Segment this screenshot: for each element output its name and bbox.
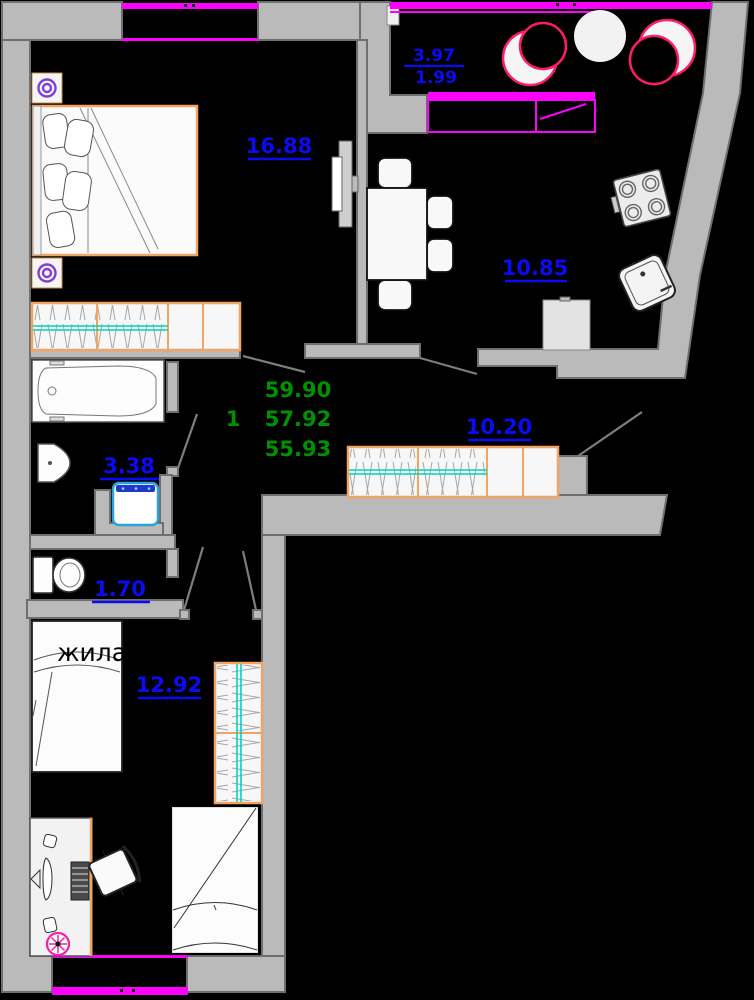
- nightstand-bottom: [32, 258, 62, 288]
- wall-wc-top: [30, 535, 175, 549]
- mouse-bottom: [43, 917, 58, 933]
- door-jamb-right: [253, 610, 262, 619]
- washing-machine: [113, 483, 158, 525]
- hall-wardrobe: [348, 447, 558, 497]
- mouse-top: [43, 834, 58, 849]
- wall-livingroom-bottom-right: [187, 956, 285, 992]
- door-jamb-left: [180, 610, 189, 619]
- chair-right-1: [427, 196, 453, 229]
- bathtub-grab-bottom: [50, 417, 64, 421]
- nightstand-top: [32, 73, 62, 103]
- tv-mount: [352, 176, 358, 192]
- wardrobe-hatch: [419, 449, 485, 495]
- chair-bottom: [378, 280, 412, 310]
- kitchen-area-label: 10.85: [502, 256, 568, 280]
- wall-hall-bottom: [262, 495, 667, 535]
- wardrobe-hatch: [217, 665, 260, 731]
- wardrobe-hatch: [350, 449, 416, 495]
- wall-kitchen-bottom-left: [305, 344, 420, 358]
- stove-body: [613, 169, 671, 227]
- kitchen-cabinet: [543, 297, 590, 350]
- bed-headboard: [33, 106, 41, 255]
- summary-area-3: 55.93: [265, 437, 331, 461]
- bedroom-bed: [33, 106, 197, 255]
- wall-top-mid: [258, 2, 362, 40]
- living-room-name-label: жилая: [57, 638, 142, 667]
- living-bed-2-outline: [171, 806, 259, 954]
- wardrobe-hatch: [217, 734, 260, 801]
- tv-screen: [332, 157, 342, 211]
- rooms-count-label: 1: [226, 407, 241, 431]
- wall-bath-right-upper: [167, 362, 178, 412]
- bedroom-window-inner: [122, 38, 258, 41]
- bedroom-wardrobe: [32, 303, 240, 350]
- cabinet-handle: [560, 297, 570, 301]
- balcony-window-outer: [390, 2, 712, 9]
- wall-top-left: [2, 2, 122, 40]
- kitchen-balcony-sill: [428, 92, 595, 99]
- chair-top: [378, 158, 412, 188]
- dining-table: [367, 188, 427, 280]
- bedroom-area-label: 16.88: [246, 134, 312, 158]
- cabinet-body: [543, 300, 590, 350]
- flower-pot: [47, 933, 69, 955]
- wall-wc-right: [167, 549, 178, 577]
- bathtub-grab-top: [50, 361, 64, 365]
- bath-sink-faucet: [48, 461, 52, 465]
- living-bed-2: [171, 806, 259, 954]
- wc-area-label: 1.70: [94, 577, 146, 601]
- summary-area-2: 57.92: [265, 407, 331, 431]
- bedroom-window-outer: [122, 3, 258, 9]
- floor-plan: 16.88 10.85 10.20 3.38 1.70 12.92 3.97 1…: [0, 0, 754, 1000]
- wall-livingroom-right: [262, 535, 285, 956]
- living-wardrobe: [215, 663, 262, 803]
- balcony-area-coef-label: 1.99: [415, 68, 457, 88]
- toilet: [33, 557, 85, 593]
- living-area-label: 12.92: [136, 673, 202, 697]
- balcony-area-full-label: 3.97: [413, 46, 455, 66]
- bathroom-area-label: 3.38: [103, 454, 155, 478]
- wall-hall-step: [558, 456, 587, 495]
- balcony-table: [574, 10, 626, 62]
- balcony-window-inner-line: [390, 11, 595, 13]
- flower-center: [56, 942, 61, 947]
- hall-area-label: 10.20: [466, 415, 532, 439]
- toilet-tank: [33, 557, 53, 593]
- desk-area: [30, 818, 92, 956]
- chair-right-2: [427, 239, 453, 272]
- bathtub: [32, 360, 164, 422]
- summary-area-1: 59.90: [265, 378, 331, 402]
